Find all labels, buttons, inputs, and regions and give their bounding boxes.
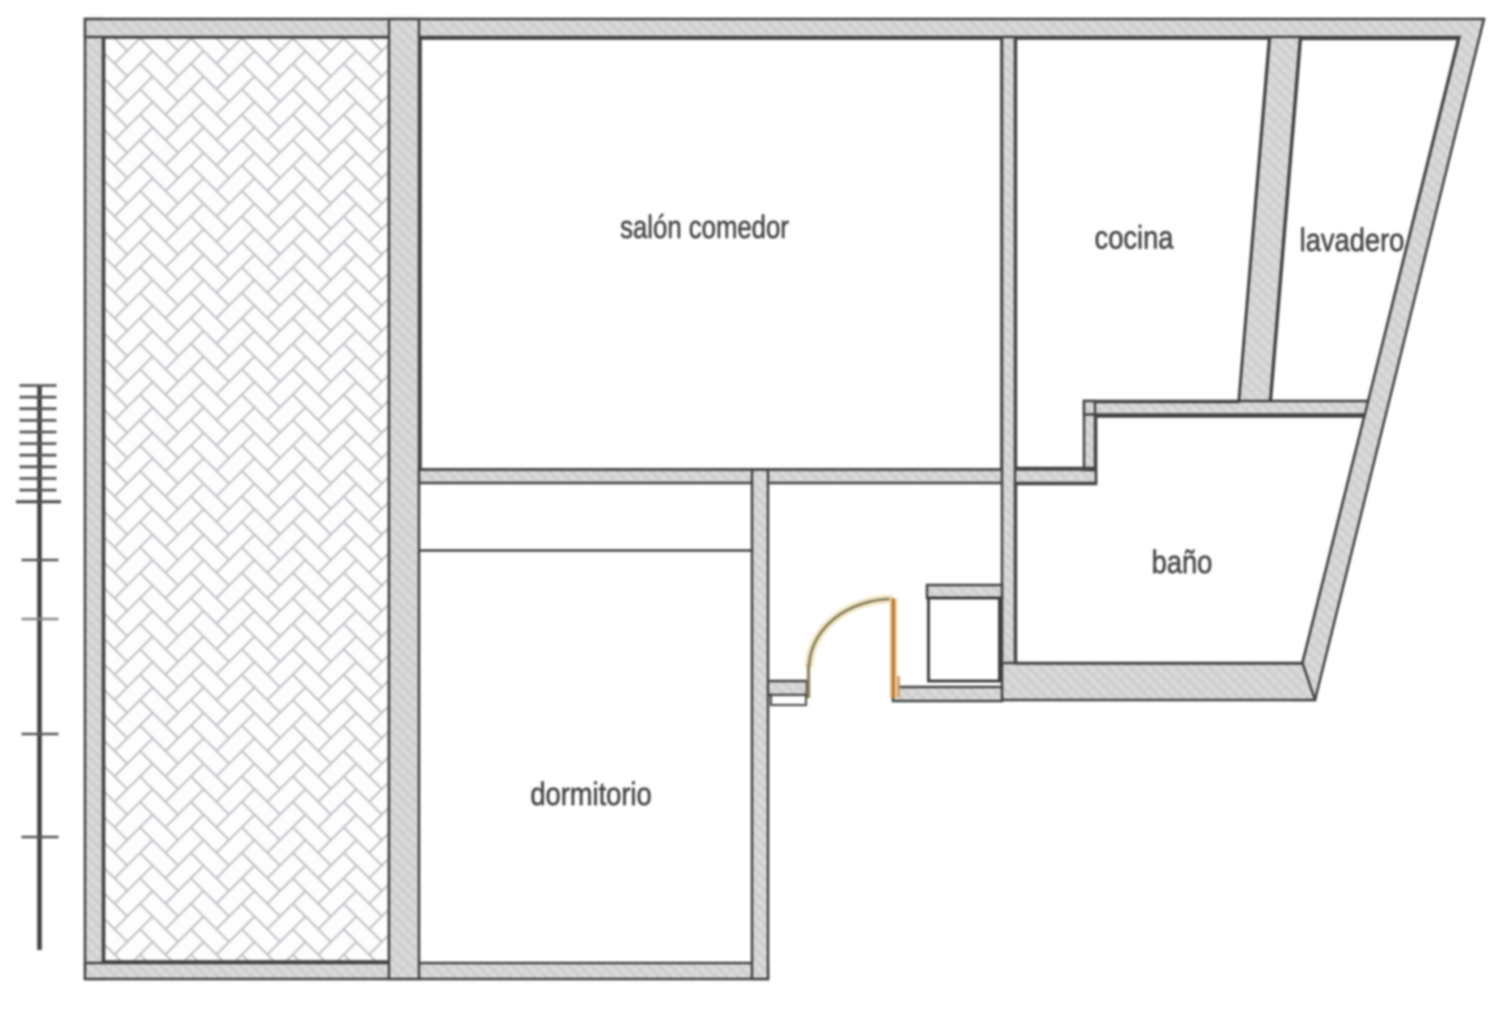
- svg-text:dormitorio: dormitorio: [530, 777, 651, 813]
- svg-text:lavadero: lavadero: [1300, 223, 1405, 259]
- svg-text:cocina: cocina: [1095, 220, 1174, 256]
- svg-text:baño: baño: [1152, 545, 1213, 581]
- svg-text:salón comedor: salón comedor: [620, 209, 789, 246]
